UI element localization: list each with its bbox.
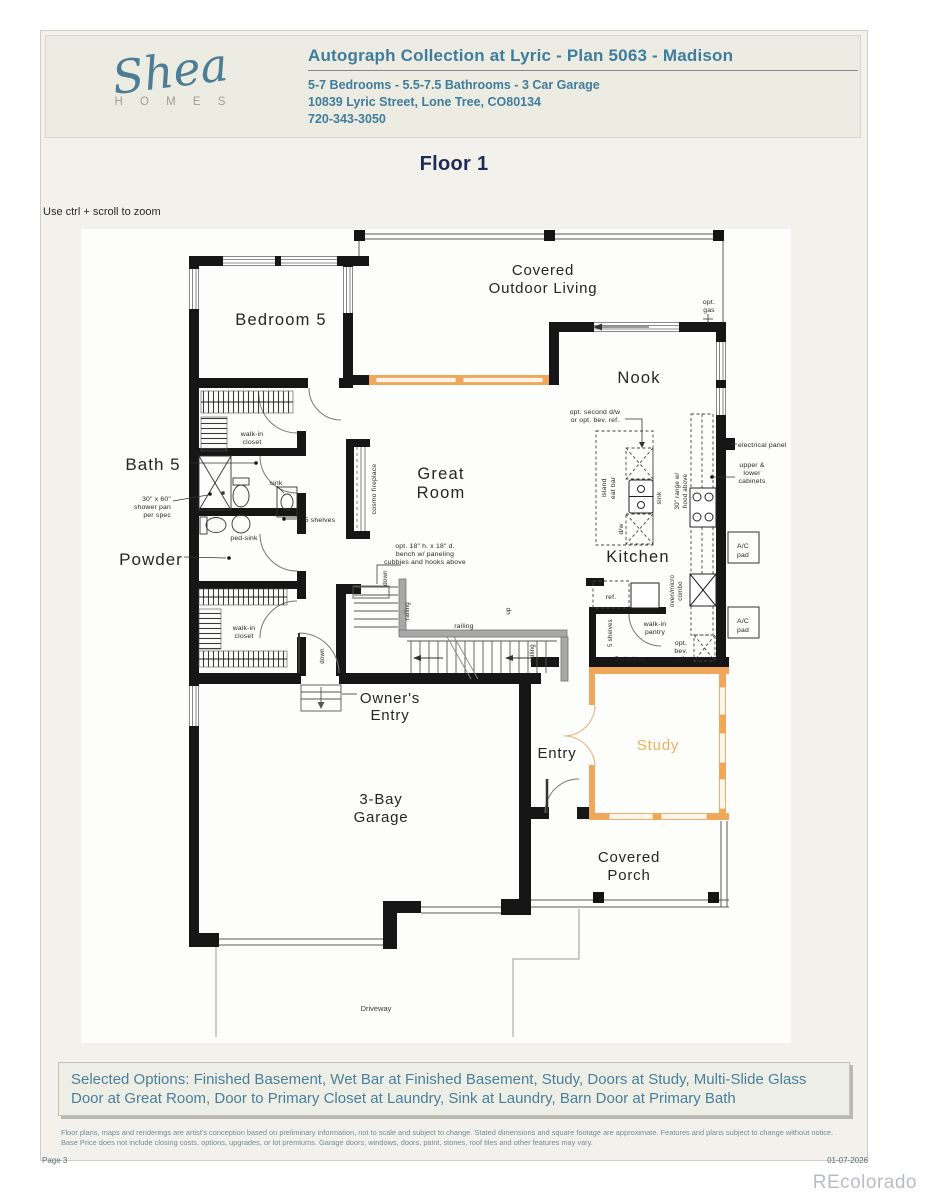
label-dw: d/w bbox=[618, 523, 625, 534]
label-bench: opt. 18" h. x 18" d. bbox=[395, 543, 454, 550]
label-5-shelves-v: 5 shelves bbox=[607, 619, 614, 647]
label-railing-3: railing bbox=[529, 644, 536, 662]
svg-text:closet: closet bbox=[235, 633, 254, 640]
label-walk-in-closet-1: walk-in bbox=[240, 431, 264, 438]
recolorado-watermark: REcolorado bbox=[813, 1172, 917, 1194]
svg-text:ref.: ref. bbox=[676, 656, 687, 663]
floor-plan-viewport[interactable]: Bedroom 5 Bath 5 Powder Great Room Nook … bbox=[81, 229, 791, 1043]
label-range: 30" range w/ bbox=[674, 472, 681, 509]
header: Shea H O M E S Autograph Collection at L… bbox=[45, 35, 861, 138]
floor-heading: Floor 1 bbox=[41, 153, 867, 176]
plan-address: 10839 Lyric Street, Lone Tree, CO80134 bbox=[308, 94, 858, 111]
title-divider bbox=[308, 70, 858, 71]
label-ped-sink: ped-sink bbox=[230, 535, 258, 542]
plan-specs: 5-7 Bedrooms - 5.5-7.5 Bathrooms - 3 Car… bbox=[308, 77, 858, 94]
label-walk-in-pantry: walk-in bbox=[643, 621, 667, 628]
label-study: Study bbox=[637, 737, 679, 754]
label-island: island bbox=[601, 479, 608, 498]
label-up: up bbox=[505, 607, 512, 615]
label-5-shelves: 5 shelves bbox=[305, 517, 336, 524]
label-railing-1: railing bbox=[404, 602, 411, 620]
label-garage: 3-Bay bbox=[359, 791, 402, 808]
svg-text:Porch: Porch bbox=[607, 867, 650, 884]
label-covered-outdoor-living: Covered bbox=[512, 262, 574, 279]
label-ref: ref. bbox=[606, 594, 617, 601]
label-island-sink: sink bbox=[656, 491, 663, 504]
label-sink: sink bbox=[270, 480, 283, 487]
label-kitchen: Kitchen bbox=[606, 548, 669, 566]
label-nook: Nook bbox=[617, 369, 660, 387]
label-driveway: Driveway bbox=[361, 1004, 392, 1013]
svg-text:eat bar: eat bar bbox=[610, 476, 617, 499]
svg-text:Room: Room bbox=[417, 484, 466, 502]
svg-text:bench w/ paneling: bench w/ paneling bbox=[396, 551, 454, 558]
svg-text:per spec: per spec bbox=[143, 512, 171, 519]
label-ac-pad-2: A/C bbox=[737, 618, 749, 625]
selected-options: Selected Options: Finished Basement, Wet… bbox=[58, 1062, 850, 1116]
label-oven-micro: oven/micro bbox=[669, 575, 676, 608]
label-powder: Powder bbox=[119, 550, 183, 569]
label-owners-entry: Owner's bbox=[360, 690, 420, 707]
svg-text:or opt. bev. ref.: or opt. bev. ref. bbox=[571, 417, 620, 424]
svg-text:pad: pad bbox=[737, 627, 749, 634]
disclaimer-text: Floor plans, maps and renderings are art… bbox=[61, 1128, 849, 1148]
label-bedroom5: Bedroom 5 bbox=[235, 311, 327, 329]
shea-homes-logo: Shea H O M E S bbox=[80, 46, 260, 108]
page-date: 01-07-2026 bbox=[827, 1156, 868, 1165]
label-down-2: down bbox=[319, 648, 326, 664]
svg-text:lower: lower bbox=[743, 470, 761, 477]
label-bath5: Bath 5 bbox=[125, 455, 180, 474]
plan-title: Autograph Collection at Lyric - Plan 506… bbox=[308, 46, 858, 66]
svg-text:Garage: Garage bbox=[354, 809, 409, 826]
label-entry: Entry bbox=[537, 745, 576, 762]
label-down-1: down bbox=[382, 570, 389, 586]
label-covered-porch: Covered bbox=[598, 849, 660, 866]
title-block: Autograph Collection at Lyric - Plan 506… bbox=[308, 46, 858, 128]
label-5-shelves-h: 5 shelves bbox=[615, 656, 646, 663]
svg-text:cubbies and hooks above: cubbies and hooks above bbox=[384, 559, 466, 566]
label-great-room: Great bbox=[417, 465, 464, 483]
label-cosmo-fireplace: cosmo fireplace bbox=[371, 464, 378, 515]
pantry-cabinet bbox=[631, 583, 659, 608]
svg-text:combo: combo bbox=[677, 581, 684, 601]
plan-phone: 720-343-3050 bbox=[308, 111, 858, 128]
svg-text:pantry: pantry bbox=[645, 629, 665, 636]
svg-text:gas: gas bbox=[703, 307, 715, 314]
label-opt-second-dw: opt. second d/w bbox=[570, 409, 621, 416]
page-number: Page 3 bbox=[42, 1156, 67, 1165]
svg-text:closet: closet bbox=[243, 439, 262, 446]
svg-text:Outdoor Living: Outdoor Living bbox=[489, 280, 598, 297]
document-page: Shea H O M E S Autograph Collection at L… bbox=[40, 30, 868, 1161]
label-opt-gas: opt. bbox=[703, 299, 715, 306]
svg-text:Entry: Entry bbox=[370, 707, 409, 724]
svg-text:pad: pad bbox=[737, 552, 749, 559]
label-walk-in-closet-2: walk-in bbox=[232, 625, 256, 632]
label-ac-pad-1: A/C bbox=[737, 543, 749, 550]
label-opt-bev-ref: opt. bbox=[675, 640, 687, 647]
zoom-hint: Use ctrl + scroll to zoom bbox=[43, 206, 161, 218]
svg-text:hood above: hood above bbox=[682, 473, 689, 508]
floor-plan-drawing: Bedroom 5 Bath 5 Powder Great Room Nook … bbox=[81, 229, 791, 1043]
label-cabinets: upper & bbox=[739, 462, 764, 469]
svg-text:cabinets: cabinets bbox=[739, 478, 766, 485]
svg-text:shower pan: shower pan bbox=[134, 504, 171, 511]
label-shower-spec: 30" x 60" bbox=[142, 496, 171, 503]
label-electrical-panel: electrical panel bbox=[738, 442, 787, 449]
label-railing-2: railing bbox=[454, 623, 474, 630]
svg-text:bev.: bev. bbox=[674, 648, 687, 655]
